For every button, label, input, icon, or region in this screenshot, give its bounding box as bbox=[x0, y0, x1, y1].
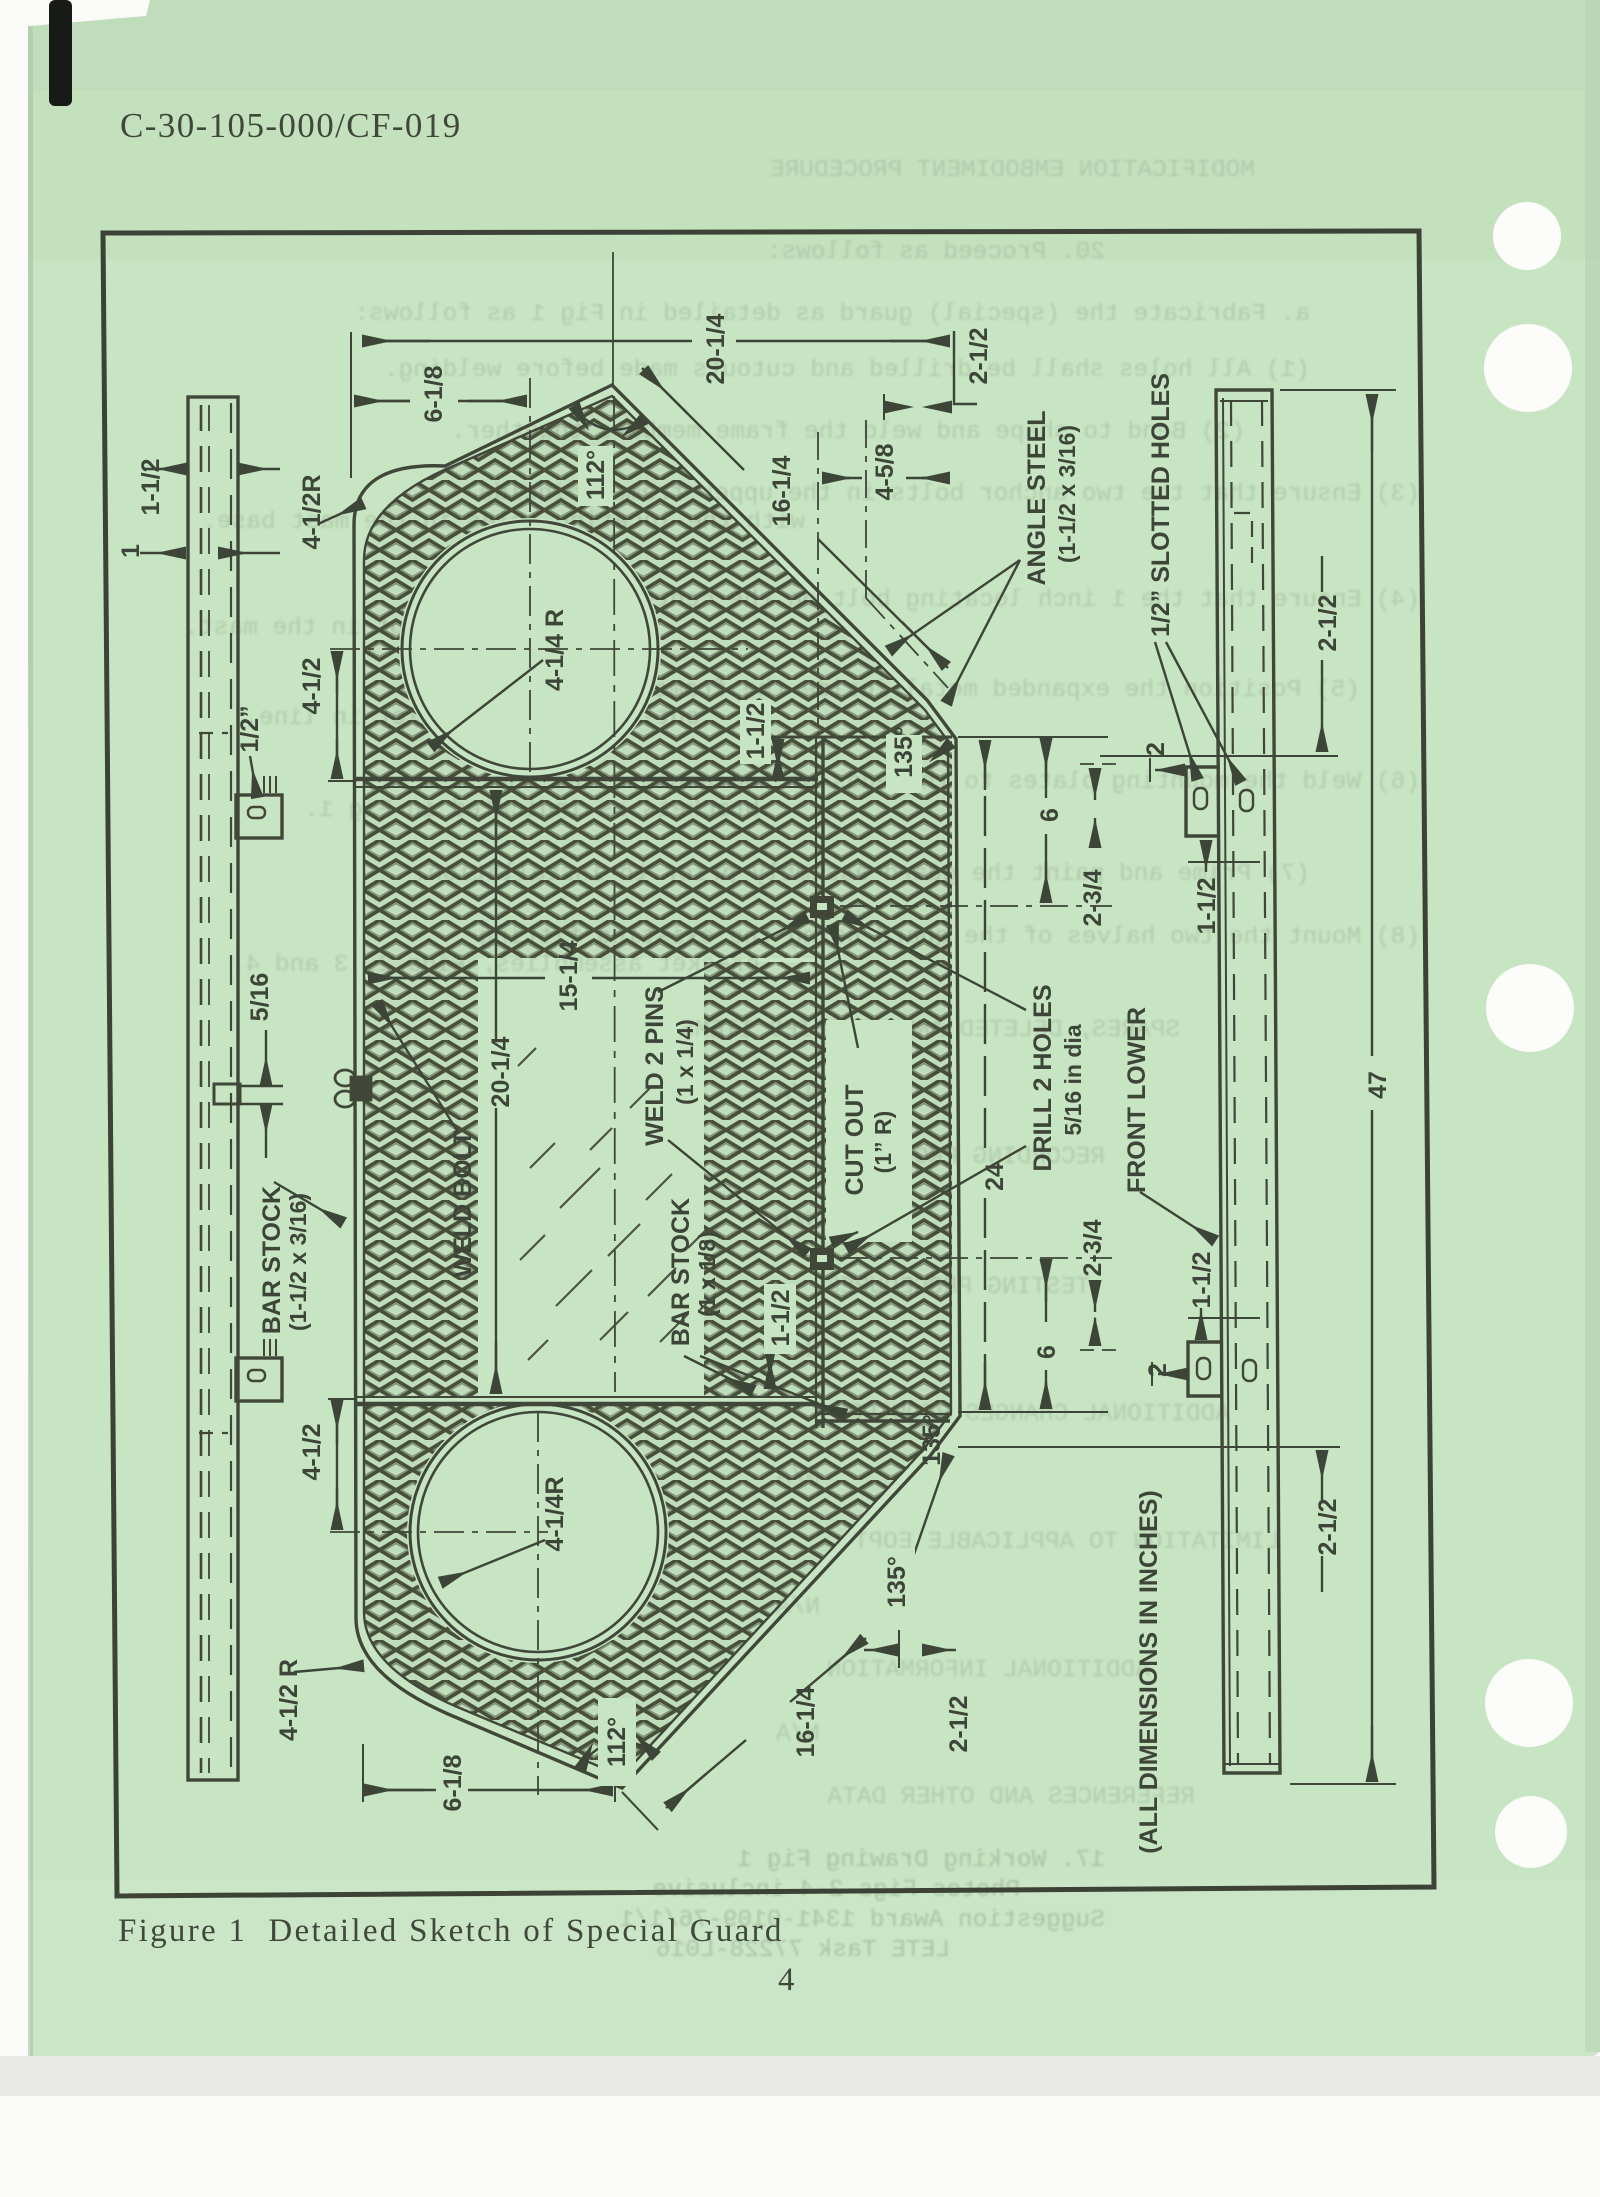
svg-text:4-1/2 R: 4-1/2 R bbox=[275, 1659, 303, 1741]
svg-text:6-1/8: 6-1/8 bbox=[420, 365, 448, 422]
svg-text:6: 6 bbox=[1033, 1345, 1061, 1359]
svg-text:135°: 135° bbox=[890, 726, 918, 778]
svg-text:16-1/4: 16-1/4 bbox=[792, 1686, 820, 1757]
svg-text:5/16 in dia: 5/16 in dia bbox=[1060, 1024, 1086, 1135]
svg-text:135°: 135° bbox=[883, 1556, 911, 1608]
svg-text:1-1/2: 1-1/2 bbox=[137, 459, 165, 516]
svg-text:4-5/8: 4-5/8 bbox=[871, 443, 899, 500]
svg-text:(1 x 1/4): (1 x 1/4) bbox=[672, 1019, 698, 1105]
svg-text:Figure 1 Detailed Sketch of S: Figure 1 Detailed Sketch of Special Guar… bbox=[118, 1913, 784, 1949]
svg-text:ANGLE STEEL: ANGLE STEEL bbox=[1023, 410, 1051, 585]
svg-text:WELD BOLT: WELD BOLT bbox=[449, 1131, 477, 1278]
svg-text:112°: 112° bbox=[603, 1717, 631, 1767]
svg-text:DRILL 2 HOLES: DRILL 2 HOLES bbox=[1029, 984, 1057, 1171]
svg-text:15-1/4: 15-1/4 bbox=[555, 940, 583, 1011]
svg-text:1: 1 bbox=[117, 544, 145, 558]
svg-text:(1” R): (1” R) bbox=[870, 1111, 896, 1174]
svg-text:1/2”: 1/2” bbox=[236, 705, 264, 752]
svg-text:a. Fabricate the (special: a. Fabricate the (special) guard as deta… bbox=[354, 301, 1310, 328]
svg-text:1-1/2: 1-1/2 bbox=[1193, 878, 1221, 935]
svg-text:5/16: 5/16 bbox=[246, 973, 274, 1022]
svg-text:47: 47 bbox=[1364, 1071, 1392, 1099]
svg-text:16-1/4: 16-1/4 bbox=[768, 455, 796, 526]
svg-text:4-1/2R: 4-1/2R bbox=[298, 474, 326, 549]
svg-text:(1 x 1/8): (1 x 1/8) bbox=[694, 1231, 720, 1317]
svg-text:135°: 135° bbox=[918, 1414, 946, 1466]
svg-text:C-30-105-000/CF-019: C-30-105-000/CF-019 bbox=[120, 106, 462, 145]
svg-text:24: 24 bbox=[981, 1163, 1009, 1191]
svg-text:20. Proceed as follows:: 20. Proceed as follows: bbox=[767, 239, 1105, 266]
svg-text:112°: 112° bbox=[582, 450, 610, 500]
svg-text:4: 4 bbox=[778, 1962, 795, 1998]
svg-text:CUT OUT: CUT OUT bbox=[841, 1084, 869, 1195]
svg-text:2: 2 bbox=[1144, 1363, 1172, 1377]
svg-text:(1-1/2 x 3/16): (1-1/2 x 3/16) bbox=[1054, 425, 1080, 563]
svg-text:4-1/2: 4-1/2 bbox=[298, 658, 326, 715]
svg-text:BAR STOCK: BAR STOCK bbox=[258, 1186, 286, 1334]
svg-text:BAR STOCK: BAR STOCK bbox=[667, 1198, 695, 1346]
svg-text:17. Working Drawing Fig 1: 17. Working Drawing Fig 1 bbox=[737, 1847, 1105, 1874]
svg-text:2-1/2: 2-1/2 bbox=[965, 328, 993, 385]
svg-text:1-1/2: 1-1/2 bbox=[1188, 1252, 1216, 1309]
svg-text:2-1/2: 2-1/2 bbox=[1314, 1499, 1342, 1556]
svg-text:4-1/4R: 4-1/4R bbox=[541, 1476, 569, 1551]
svg-text:6: 6 bbox=[1036, 808, 1064, 822]
svg-text:ADDITIONAL INFORMATION: ADDITIONAL INFORMATION bbox=[827, 1657, 1150, 1684]
svg-text:20-1/4: 20-1/4 bbox=[702, 313, 730, 384]
svg-text:WELD 2 PINS: WELD 2 PINS bbox=[641, 986, 669, 1146]
svg-text:2-1/2: 2-1/2 bbox=[945, 1696, 973, 1753]
svg-text:4-1/2: 4-1/2 bbox=[298, 1424, 326, 1481]
svg-text:2: 2 bbox=[1142, 742, 1170, 756]
svg-text:(1-1/2 x 3/16): (1-1/2 x 3/16) bbox=[285, 1193, 311, 1331]
svg-text:1-1/2: 1-1/2 bbox=[767, 1290, 795, 1347]
svg-text:(ALL DIMENSIONS IN INCHES): (ALL DIMENSIONS IN INCHES) bbox=[1135, 1490, 1163, 1853]
svg-text:1-1/2: 1-1/2 bbox=[742, 703, 770, 760]
svg-text:2-3/4: 2-3/4 bbox=[1079, 869, 1107, 926]
svg-text:6-1/8: 6-1/8 bbox=[439, 1754, 467, 1811]
svg-text:4-1/4 R: 4-1/4 R bbox=[541, 609, 569, 691]
svg-text:20-1/4: 20-1/4 bbox=[487, 1036, 515, 1107]
svg-text:1/2” SLOTTED HOLES: 1/2” SLOTTED HOLES bbox=[1147, 373, 1175, 637]
svg-text:FRONT LOWER: FRONT LOWER bbox=[1123, 1007, 1151, 1193]
svg-text:2-1/2: 2-1/2 bbox=[1314, 595, 1342, 652]
svg-text:MODIFICATION EMBODIMENT PROCED: MODIFICATION EMBODIMENT PROCEDURE bbox=[770, 157, 1255, 184]
svg-text:2-3/4: 2-3/4 bbox=[1079, 1219, 1107, 1276]
